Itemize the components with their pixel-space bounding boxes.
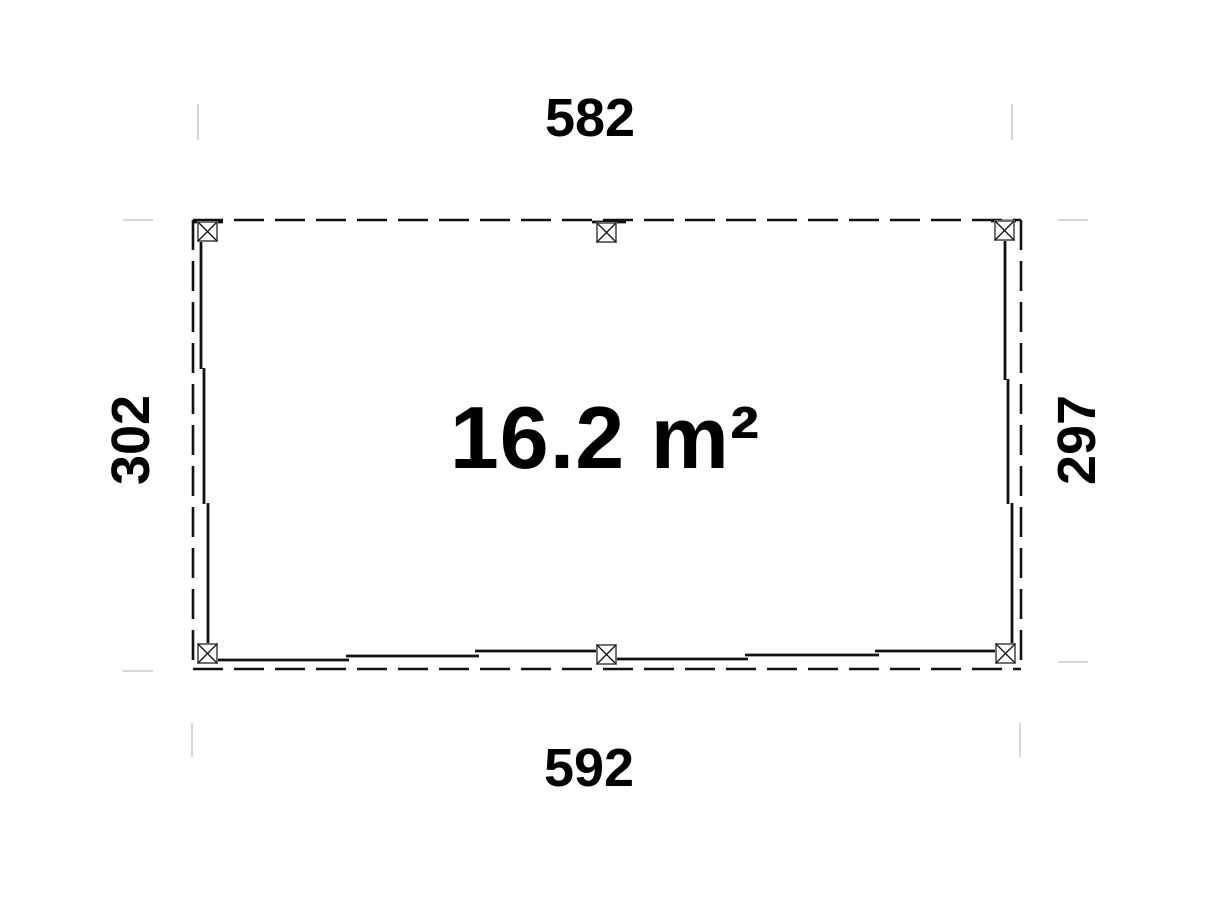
dimension-label-top: 582 xyxy=(545,87,635,149)
dimension-label-left: 302 xyxy=(100,395,162,485)
post-icon xyxy=(597,223,616,242)
dimension-label-right: 297 xyxy=(1046,395,1108,485)
area-label: 16.2 m² xyxy=(450,387,760,489)
post-icon xyxy=(597,645,616,664)
dimension-label-bottom: 592 xyxy=(544,737,634,799)
post-icon xyxy=(198,644,217,663)
post-icon xyxy=(198,222,217,241)
post-icon xyxy=(996,644,1015,663)
post-icon xyxy=(995,221,1014,240)
floor-plan-canvas: 582 592 302 297 16.2 m² xyxy=(0,0,1214,911)
